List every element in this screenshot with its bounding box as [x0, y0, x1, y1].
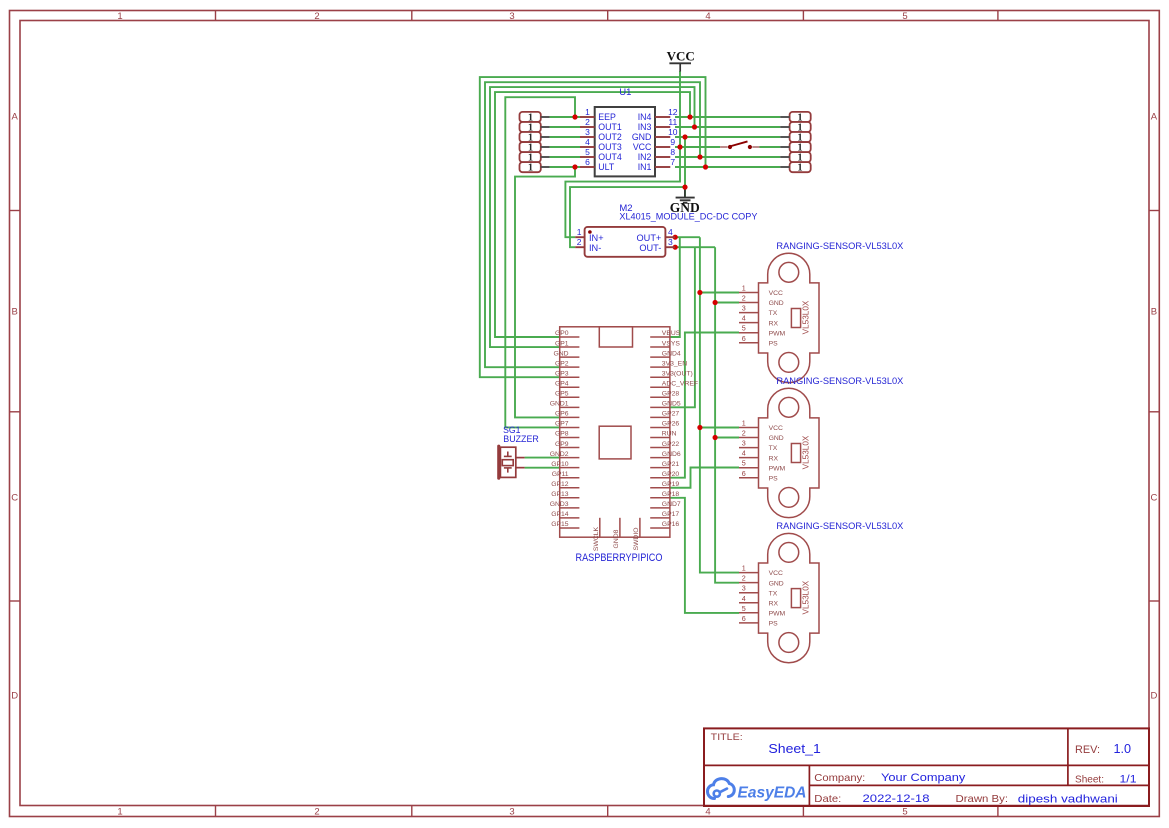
svg-text:4: 4 — [742, 449, 746, 458]
svg-text:2: 2 — [742, 429, 746, 438]
svg-text:2022-12-18: 2022-12-18 — [863, 793, 930, 805]
svg-text:GP20: GP20 — [662, 471, 680, 478]
svg-text:GND7: GND7 — [662, 501, 681, 508]
svg-text:RUN: RUN — [662, 431, 677, 438]
svg-text:GP11: GP11 — [552, 471, 569, 478]
svg-text:6: 6 — [742, 614, 746, 623]
svg-text:TITLE:: TITLE: — [711, 732, 743, 743]
svg-text:PS: PS — [769, 475, 779, 482]
svg-text:TX: TX — [769, 310, 778, 317]
svg-text:VCC: VCC — [769, 425, 783, 432]
svg-text:1: 1 — [528, 163, 533, 174]
svg-text:4: 4 — [742, 314, 746, 323]
svg-text:VCC: VCC — [633, 142, 652, 152]
svg-text:VL53L0X: VL53L0X — [802, 580, 811, 614]
svg-text:7: 7 — [670, 157, 675, 167]
svg-text:2: 2 — [314, 11, 319, 22]
svg-text:1: 1 — [797, 163, 802, 174]
svg-text:GP26: GP26 — [662, 421, 680, 428]
svg-text:RX: RX — [769, 455, 779, 462]
svg-text:OUT3: OUT3 — [598, 142, 622, 152]
svg-text:GP8: GP8 — [555, 431, 569, 438]
svg-text:GP5: GP5 — [555, 391, 569, 398]
svg-text:GP0: GP0 — [555, 330, 569, 337]
svg-text:REV:: REV: — [1075, 744, 1100, 756]
svg-text:D: D — [11, 691, 18, 702]
svg-text:2: 2 — [585, 117, 590, 127]
svg-text:4: 4 — [705, 806, 710, 817]
svg-text:D: D — [1150, 691, 1157, 702]
svg-text:12: 12 — [668, 107, 678, 117]
svg-text:GND5: GND5 — [662, 401, 681, 408]
svg-text:1: 1 — [742, 284, 746, 293]
svg-text:5: 5 — [742, 604, 746, 613]
svg-text:2: 2 — [742, 574, 746, 583]
svg-text:VL53L0X: VL53L0X — [802, 435, 811, 469]
svg-text:IN2: IN2 — [638, 152, 652, 162]
svg-text:C: C — [1150, 492, 1157, 503]
svg-text:5: 5 — [902, 806, 907, 817]
svg-text:SWCLK: SWCLK — [593, 526, 600, 551]
svg-text:Drawn By:: Drawn By: — [956, 794, 1009, 805]
svg-text:PWM: PWM — [769, 465, 786, 472]
svg-text:RX: RX — [769, 600, 779, 607]
svg-text:1.0: 1.0 — [1114, 742, 1132, 756]
svg-text:GP3: GP3 — [555, 370, 569, 377]
svg-text:11: 11 — [668, 117, 677, 127]
svg-text:GND: GND — [553, 350, 568, 357]
svg-text:GP4: GP4 — [555, 380, 569, 387]
svg-text:GP12: GP12 — [551, 481, 569, 488]
svg-text:1: 1 — [577, 227, 582, 237]
svg-text:GND3: GND3 — [550, 501, 569, 508]
svg-text:6: 6 — [585, 157, 590, 167]
svg-text:B: B — [12, 307, 18, 318]
svg-text:5: 5 — [742, 459, 746, 468]
svg-text:GP2: GP2 — [555, 360, 569, 367]
svg-text:IN1: IN1 — [638, 162, 652, 172]
svg-text:3V3(OUT): 3V3(OUT) — [662, 370, 693, 377]
svg-text:PWM: PWM — [769, 330, 786, 337]
svg-text:OUT1: OUT1 — [598, 122, 622, 132]
svg-text:C: C — [11, 492, 18, 503]
svg-text:3: 3 — [585, 127, 590, 137]
svg-text:IN-: IN- — [589, 243, 601, 253]
svg-text:GND: GND — [769, 580, 784, 587]
svg-text:RANGING-SENSOR-VL53L0X: RANGING-SENSOR-VL53L0X — [776, 521, 903, 531]
svg-text:Company:: Company: — [814, 773, 865, 784]
svg-text:RASPBERRYPIPICO: RASPBERRYPIPICO — [576, 552, 663, 564]
svg-text:ULT: ULT — [598, 162, 615, 172]
svg-text:1/1: 1/1 — [1120, 774, 1137, 786]
svg-text:Sheet_1: Sheet_1 — [768, 741, 820, 756]
svg-text:GP15: GP15 — [551, 521, 569, 528]
svg-text:GP18: GP18 — [662, 491, 680, 498]
svg-text:6: 6 — [742, 334, 746, 343]
svg-text:1: 1 — [585, 107, 590, 117]
svg-text:4: 4 — [668, 227, 673, 237]
svg-text:GP21: GP21 — [662, 461, 680, 468]
svg-text:GP6: GP6 — [555, 411, 569, 418]
svg-text:GP7: GP7 — [555, 421, 569, 428]
svg-text:OUT4: OUT4 — [598, 152, 622, 162]
svg-text:IN4: IN4 — [638, 112, 652, 122]
svg-text:3: 3 — [742, 439, 746, 448]
svg-text:5: 5 — [902, 11, 907, 22]
svg-text:OUT-: OUT- — [639, 243, 661, 253]
svg-text:IN3: IN3 — [638, 122, 652, 132]
svg-text:PS: PS — [769, 340, 779, 347]
svg-text:TX: TX — [769, 445, 778, 452]
svg-text:IN+: IN+ — [589, 233, 604, 243]
svg-text:PWM: PWM — [769, 610, 786, 617]
svg-text:EEP: EEP — [598, 112, 616, 122]
svg-text:2: 2 — [742, 294, 746, 303]
svg-text:8: 8 — [670, 147, 675, 157]
svg-text:Date:: Date: — [814, 794, 841, 805]
svg-text:4: 4 — [705, 11, 710, 22]
svg-text:VL53L0X: VL53L0X — [802, 300, 811, 334]
svg-text:VCC: VCC — [769, 290, 783, 297]
svg-text:GP13: GP13 — [551, 491, 569, 498]
svg-text:VCC: VCC — [667, 49, 695, 64]
svg-text:GP14: GP14 — [551, 511, 569, 518]
svg-text:GND2: GND2 — [550, 451, 569, 458]
svg-text:B: B — [1151, 307, 1157, 318]
svg-text:5: 5 — [742, 324, 746, 333]
svg-text:EasyEDA: EasyEDA — [738, 785, 807, 802]
svg-text:1: 1 — [742, 564, 746, 573]
svg-text:GND1: GND1 — [550, 401, 569, 408]
svg-text:RX: RX — [769, 320, 779, 327]
svg-text:XL4015_MODULE_DC-DC COPY: XL4015_MODULE_DC-DC COPY — [619, 212, 757, 222]
svg-text:VBUS: VBUS — [662, 330, 681, 337]
svg-text:GND: GND — [632, 132, 652, 142]
svg-text:3: 3 — [668, 237, 673, 247]
svg-text:3: 3 — [742, 304, 746, 313]
svg-text:RANGING-SENSOR-VL53L0X: RANGING-SENSOR-VL53L0X — [776, 376, 903, 386]
svg-text:OUT+: OUT+ — [637, 233, 662, 243]
svg-text:GP28: GP28 — [662, 391, 680, 398]
svg-text:GP9: GP9 — [555, 441, 569, 448]
svg-text:GP22: GP22 — [662, 441, 680, 448]
svg-text:3: 3 — [742, 584, 746, 593]
svg-text:A: A — [1151, 111, 1158, 122]
svg-text:GND: GND — [769, 435, 784, 442]
svg-text:SWDIO: SWDIO — [633, 527, 640, 550]
svg-text:Your Company: Your Company — [881, 772, 966, 784]
svg-text:9: 9 — [670, 137, 675, 147]
svg-text:2: 2 — [577, 237, 582, 247]
svg-text:6: 6 — [742, 469, 746, 478]
svg-text:PS: PS — [769, 620, 779, 627]
svg-text:3V3_EN: 3V3_EN — [662, 360, 687, 367]
svg-text:dipesh vadhwani: dipesh vadhwani — [1018, 793, 1118, 805]
svg-text:GND: GND — [769, 300, 784, 307]
svg-text:OUT2: OUT2 — [598, 132, 622, 142]
svg-text:ADC_VREF: ADC_VREF — [662, 380, 698, 387]
svg-text:1: 1 — [117, 806, 122, 817]
svg-text:A: A — [12, 111, 19, 122]
svg-text:GP1: GP1 — [555, 340, 569, 347]
svg-text:GP16: GP16 — [662, 521, 680, 528]
svg-text:3: 3 — [509, 11, 514, 22]
svg-text:GP10: GP10 — [551, 461, 569, 468]
svg-text:TX: TX — [769, 590, 778, 597]
svg-text:10: 10 — [668, 127, 678, 137]
svg-text:VSYS: VSYS — [662, 340, 681, 347]
svg-text:5: 5 — [585, 147, 590, 157]
svg-text:GND4: GND4 — [662, 350, 681, 357]
svg-text:2: 2 — [314, 806, 319, 817]
svg-text:RANGING-SENSOR-VL53L0X: RANGING-SENSOR-VL53L0X — [776, 241, 903, 251]
svg-text:GP19: GP19 — [662, 481, 680, 488]
svg-text:U1: U1 — [619, 87, 631, 98]
svg-text:GND8: GND8 — [613, 529, 620, 548]
svg-text:3: 3 — [509, 806, 514, 817]
svg-text:GND6: GND6 — [662, 451, 681, 458]
svg-text:Sheet:: Sheet: — [1075, 775, 1104, 786]
svg-text:BUZZER: BUZZER — [503, 433, 539, 444]
svg-text:VCC: VCC — [769, 570, 783, 577]
svg-text:4: 4 — [742, 594, 746, 603]
svg-text:1: 1 — [117, 11, 122, 22]
svg-text:4: 4 — [585, 137, 590, 147]
svg-text:GP27: GP27 — [662, 411, 680, 418]
svg-text:GP17: GP17 — [662, 511, 680, 518]
svg-text:1: 1 — [742, 419, 746, 428]
